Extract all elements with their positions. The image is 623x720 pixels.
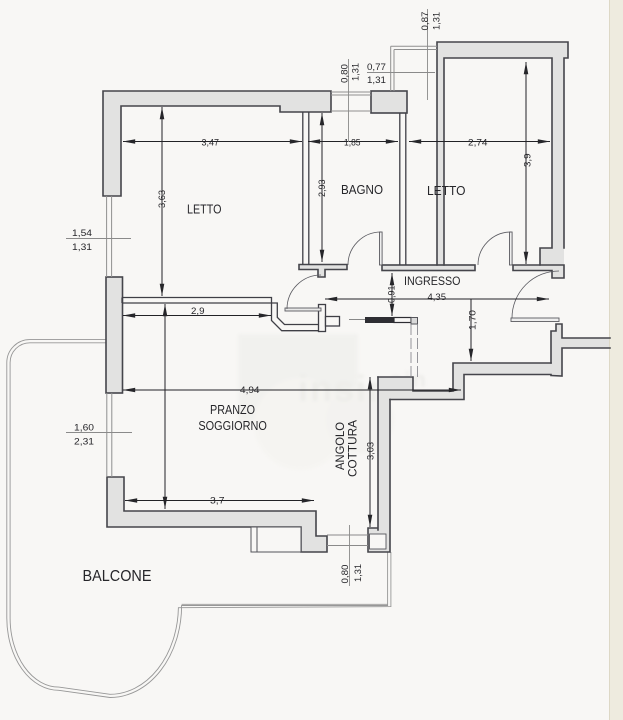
svg-text:4,35: 4,35 [428, 292, 447, 303]
svg-text:2,31: 2,31 [74, 437, 94, 448]
svg-text:3,9: 3,9 [523, 154, 534, 168]
svg-text:0,87: 0,87 [420, 12, 431, 31]
svg-text:COTTURA: COTTURA [348, 420, 360, 477]
svg-text:3,7: 3,7 [210, 496, 225, 507]
svg-text:3,03: 3,03 [366, 442, 377, 460]
svg-text:0,80: 0,80 [340, 565, 351, 584]
svg-text:3,47: 3,47 [202, 138, 220, 149]
svg-text:0,80: 0,80 [340, 64, 351, 83]
svg-text:INGRESSO: INGRESSO [404, 276, 461, 288]
svg-text:2,93: 2,93 [317, 180, 328, 198]
svg-text:1,54: 1,54 [72, 228, 93, 239]
svg-text:ANGOLO: ANGOLO [335, 422, 347, 470]
svg-text:PRANZO: PRANZO [210, 402, 255, 417]
svg-text:1,70: 1,70 [468, 310, 479, 330]
svg-text:3,63: 3,63 [157, 190, 168, 208]
svg-text:BALCONE: BALCONE [83, 568, 152, 585]
svg-text:LETTO: LETTO [187, 201, 222, 216]
svg-text:1,31: 1,31 [351, 63, 362, 81]
svg-text:1,60: 1,60 [74, 423, 94, 434]
svg-text:1,31: 1,31 [432, 12, 443, 30]
svg-text:0,91: 0,91 [387, 286, 398, 304]
svg-text:2,74: 2,74 [468, 138, 488, 149]
svg-text:SOGGIORNO: SOGGIORNO [198, 418, 267, 433]
svg-text:BAGNO: BAGNO [341, 182, 383, 197]
svg-text:1,31: 1,31 [72, 242, 92, 253]
svg-text:1,31: 1,31 [353, 564, 364, 582]
svg-text:1,31: 1,31 [367, 75, 386, 86]
svg-text:LETTO: LETTO [427, 183, 466, 198]
svg-text:4,94: 4,94 [240, 385, 260, 396]
svg-text:1,85: 1,85 [344, 138, 361, 149]
svg-text:2,9: 2,9 [191, 306, 205, 317]
svg-text:0,77: 0,77 [367, 62, 386, 73]
